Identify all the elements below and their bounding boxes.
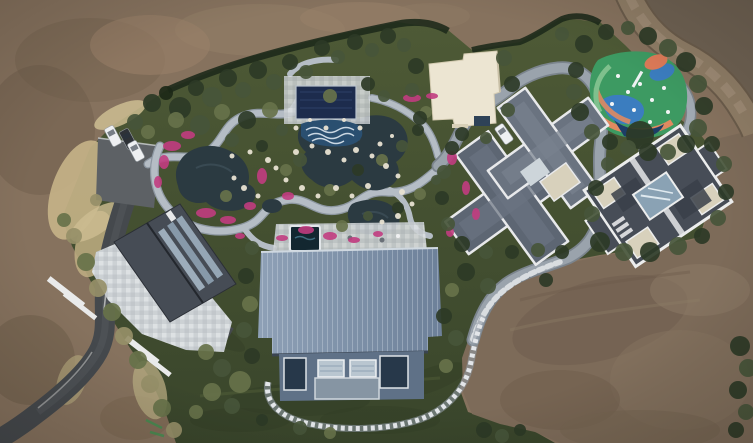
aerial-photo xyxy=(0,0,753,443)
aerial-photo-stage xyxy=(0,0,753,443)
photo-vignette xyxy=(0,0,753,443)
